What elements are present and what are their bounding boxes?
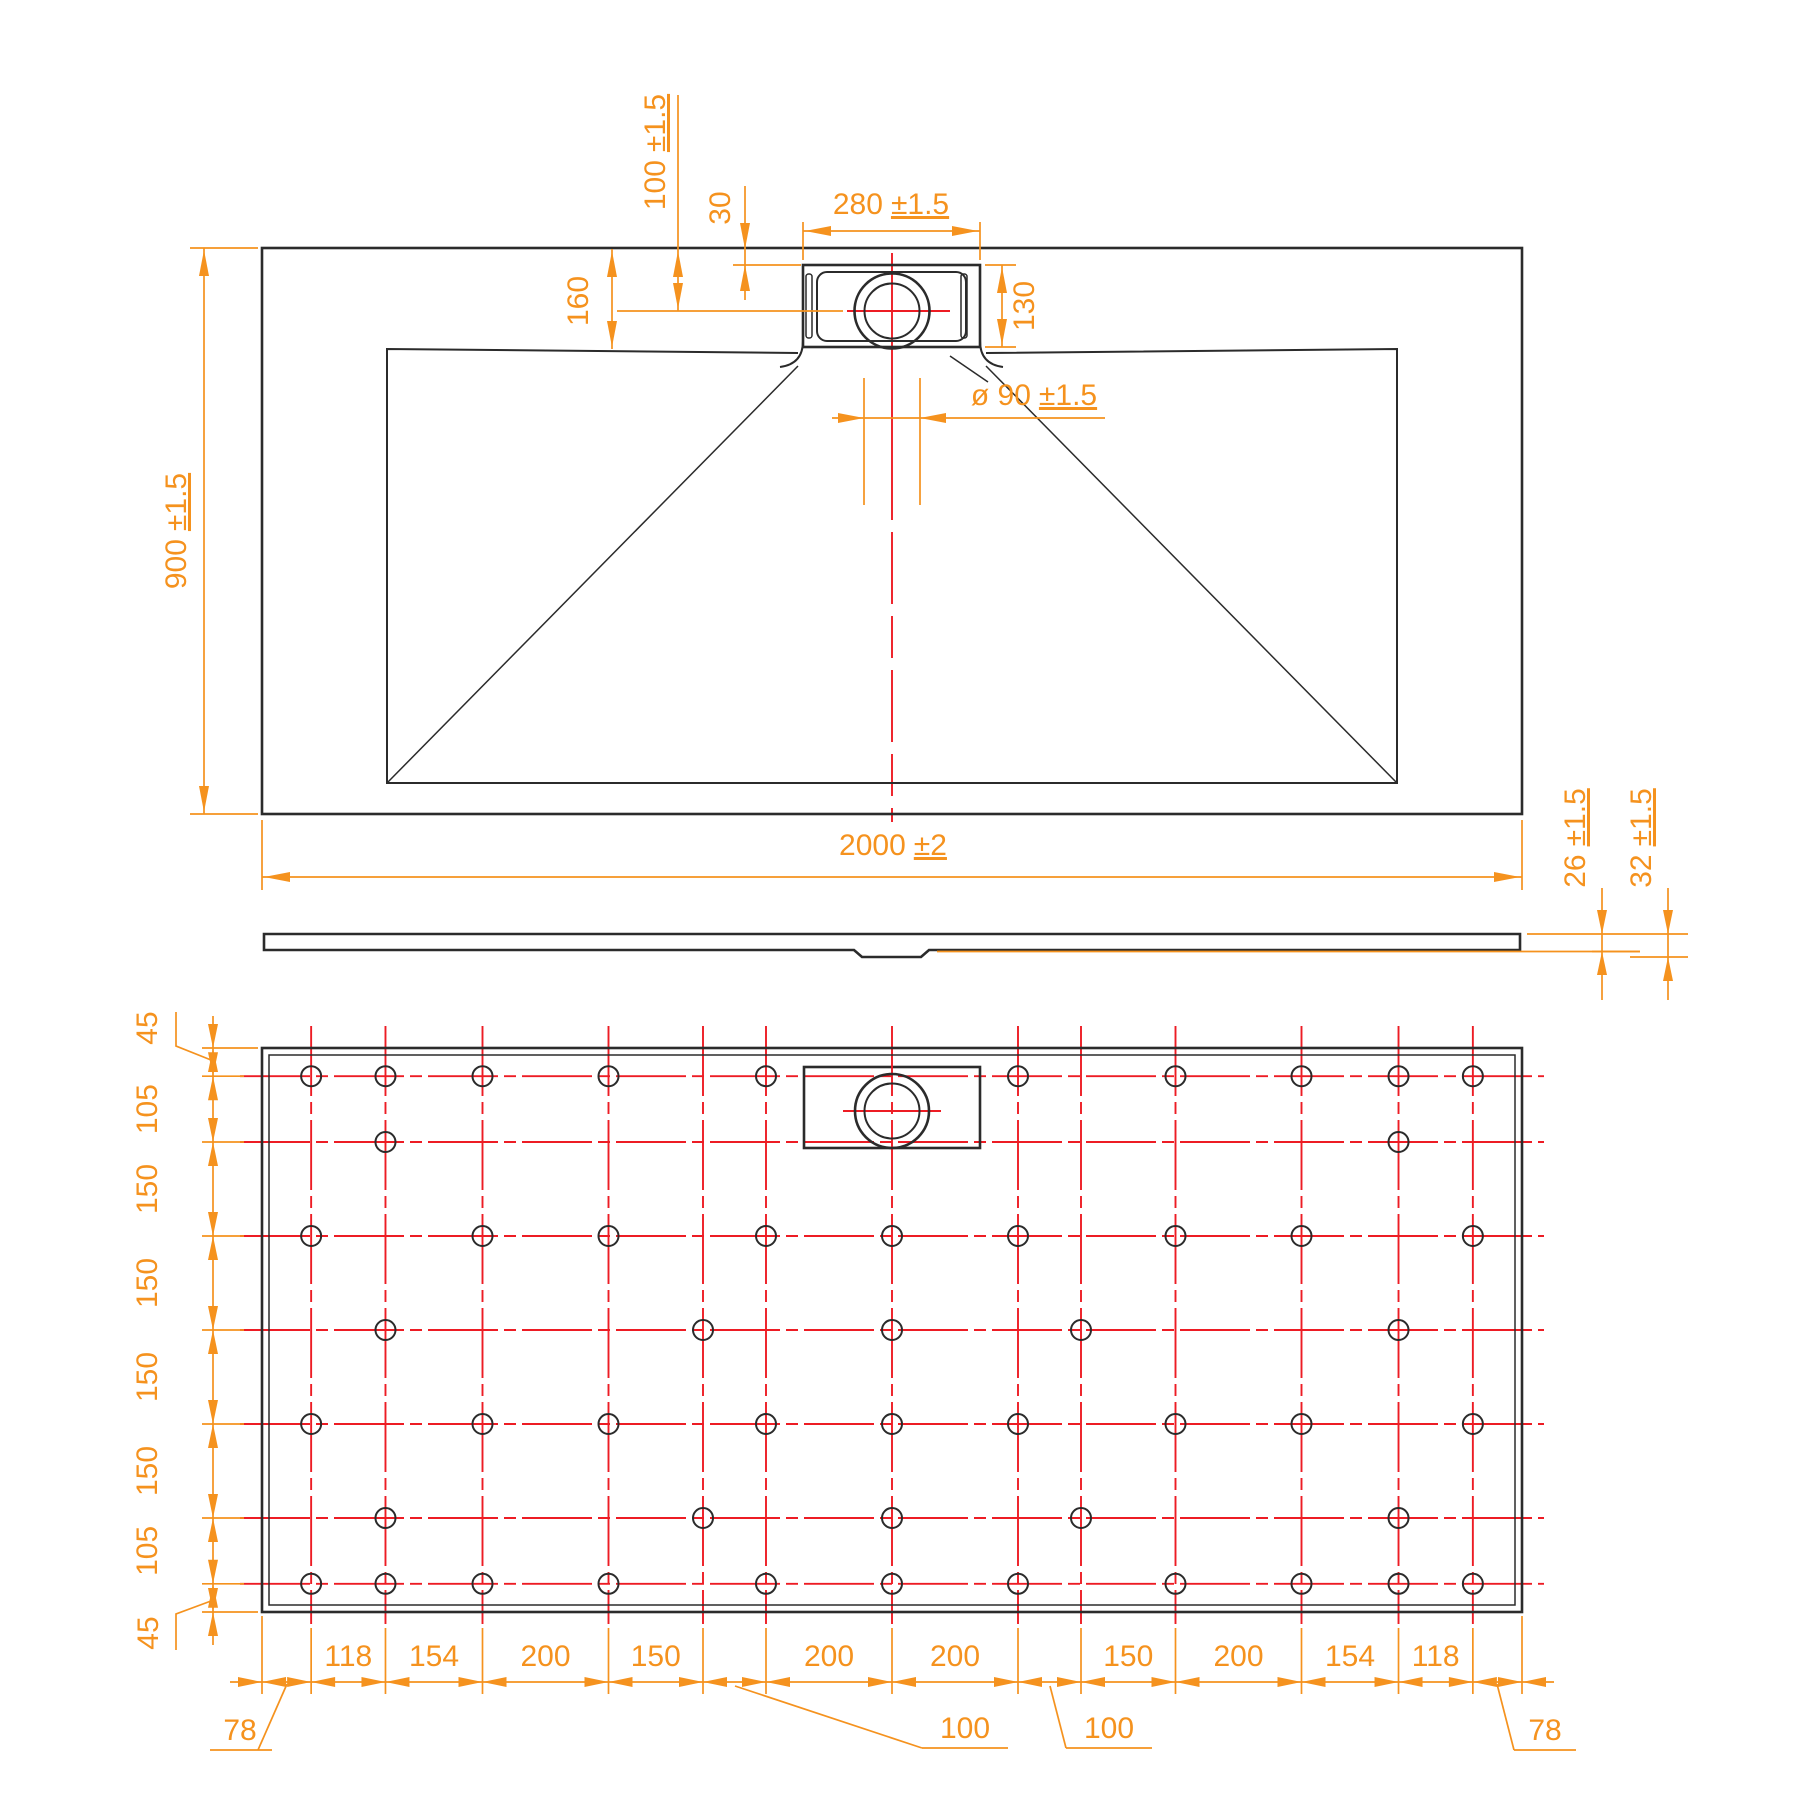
recess-waist-left	[780, 341, 803, 367]
chain-arrow	[208, 1236, 218, 1260]
underside-row-chain: 105150150150150105 45 45	[131, 1011, 258, 1650]
chain-label: 154	[1325, 1640, 1375, 1673]
column-chain-generated: 118154200150200200150200154118	[230, 1616, 1554, 1694]
chain-arrow	[1081, 1677, 1105, 1687]
dim-label-basin-top-offset: 160	[562, 276, 595, 326]
chain-arrow	[208, 1494, 218, 1518]
side-view: 26±1.5 32±1.5	[264, 788, 1688, 1000]
column-chain-leader-label-78-left: 78	[223, 1714, 256, 1747]
chain-label: 150	[631, 1640, 681, 1673]
bottom-view	[240, 1026, 1544, 1624]
arrowhead	[740, 223, 750, 249]
leader-line	[1497, 1684, 1514, 1750]
chain-label: 150	[131, 1258, 164, 1308]
chain-label: 200	[930, 1640, 980, 1673]
dim-recess-top-offset: 30	[704, 186, 801, 300]
chain-label: 200	[804, 1640, 854, 1673]
chain-label: 150	[1103, 1640, 1153, 1673]
chain-arrow	[892, 1677, 916, 1687]
chain-arrow	[208, 1306, 218, 1330]
chain-arrow	[1152, 1677, 1176, 1687]
dim-label-tray-depth: 900±1.5	[160, 473, 193, 589]
chain-arrow	[208, 1588, 218, 1612]
arrowhead	[920, 413, 946, 423]
chain-arrow	[1449, 1677, 1473, 1687]
chain-arrow	[208, 1400, 218, 1424]
chain-arrow	[1018, 1677, 1042, 1687]
chain-arrow	[1498, 1677, 1522, 1687]
row-chain-leader-label-bottom: 45	[132, 1616, 165, 1649]
chain-arrow	[208, 1052, 218, 1076]
dim-recess-depth: 130	[985, 265, 1041, 347]
chain-arrow	[679, 1677, 703, 1687]
plan-dimensions: 900±1.5 2000±2 160 100±1.5	[160, 94, 1522, 890]
dim-drain-diameter: ø 90±1.5	[832, 356, 1105, 505]
dim-basin-top-offset: 160	[562, 249, 617, 349]
arrowhead	[952, 226, 978, 236]
column-chain-leader-label-100-right: 100	[1084, 1712, 1134, 1745]
chain-arrow	[703, 1677, 727, 1687]
leader-line	[176, 1012, 211, 1060]
chain-arrow	[208, 1142, 218, 1166]
chain-label: 200	[1213, 1640, 1263, 1673]
chain-arrow	[208, 1076, 218, 1100]
arrowhead	[607, 251, 617, 277]
leader-line	[735, 1686, 922, 1748]
dim-total-thickness: 32±1.5	[1625, 788, 1688, 1000]
row-chain-leader-label-top: 45	[131, 1011, 164, 1044]
arrowhead	[1597, 910, 1607, 934]
dim-edge-thickness: 26±1.5	[1527, 788, 1688, 1000]
chain-arrow	[208, 1330, 218, 1354]
dim-label-drain-center-offset: 100±1.5	[639, 94, 672, 210]
dim-label-drain-diameter: ø 90±1.5	[971, 379, 1097, 412]
chain-label: 118	[1412, 1640, 1460, 1673]
arrowhead	[1597, 952, 1607, 976]
arrowhead	[1663, 910, 1673, 934]
chain-arrow	[311, 1677, 335, 1687]
chain-arrow	[287, 1677, 311, 1687]
arrowhead	[199, 250, 209, 276]
arrowhead	[199, 786, 209, 812]
chain-label: 200	[520, 1640, 570, 1673]
chain-arrow	[238, 1677, 262, 1687]
basin-slope-diagonal-left	[387, 366, 798, 783]
arrowhead	[607, 321, 617, 347]
chain-arrow	[208, 1024, 218, 1048]
dim-label-recess-top-offset: 30	[704, 191, 737, 224]
chain-arrow	[609, 1677, 633, 1687]
chain-label: 105	[131, 1526, 164, 1576]
chain-arrow	[766, 1677, 790, 1687]
chain-arrow	[361, 1677, 385, 1687]
column-chain-leader-label-100-left: 100	[940, 1712, 990, 1745]
dim-tray-width: 2000±2	[262, 820, 1522, 890]
arrowhead	[673, 283, 683, 309]
leader-line	[1050, 1686, 1066, 1748]
arrowhead	[997, 319, 1007, 345]
chain-arrow	[1375, 1677, 1399, 1687]
chain-arrow	[208, 1560, 218, 1584]
dim-label-recess-depth: 130	[1008, 281, 1041, 331]
chain-arrow	[1057, 1677, 1081, 1687]
dim-label-tray-width: 2000±2	[839, 829, 947, 862]
chain-label: 105	[131, 1084, 164, 1134]
leader-line	[176, 1601, 211, 1650]
arrowhead	[1494, 872, 1520, 882]
drawing-page: 900±1.5 2000±2 160 100±1.5	[0, 0, 1800, 1800]
chain-arrow	[208, 1518, 218, 1542]
dim-label-recess-width: 280±1.5	[833, 188, 949, 221]
chain-arrow	[1278, 1677, 1302, 1687]
chain-label: 118	[324, 1640, 372, 1673]
arrowhead	[838, 413, 864, 423]
chain-arrow	[1302, 1677, 1326, 1687]
arrowhead	[264, 872, 290, 882]
underside-drain	[804, 1026, 980, 1624]
chain-label: 154	[409, 1640, 459, 1673]
dim-label-edge-thickness: 26±1.5	[1559, 788, 1592, 888]
arrowhead	[997, 267, 1007, 293]
chain-label: 150	[131, 1352, 164, 1402]
arrowhead	[1663, 957, 1673, 981]
chain-arrow	[1522, 1677, 1546, 1687]
chain-arrow	[208, 1424, 218, 1448]
dim-tray-depth: 900±1.5	[160, 248, 258, 814]
chain-arrow	[208, 1118, 218, 1142]
chain-arrow	[262, 1677, 286, 1687]
dim-label-total-thickness: 32±1.5	[1625, 788, 1658, 888]
chain-arrow	[994, 1677, 1018, 1687]
arrowhead	[673, 251, 683, 277]
chain-arrow	[483, 1677, 507, 1687]
technical-drawing: 900±1.5 2000±2 160 100±1.5	[0, 0, 1800, 1800]
chain-arrow	[208, 1212, 218, 1236]
chain-arrow	[868, 1677, 892, 1687]
recess-waist-right	[980, 341, 1003, 367]
arrowhead	[805, 226, 831, 236]
chain-arrow	[1473, 1677, 1497, 1687]
chain-label: 150	[131, 1446, 164, 1496]
basin-slope-diagonal-right	[986, 366, 1397, 783]
chain-arrow	[459, 1677, 483, 1687]
chain-arrow	[385, 1677, 409, 1687]
column-chain-leader-label-78-right: 78	[1528, 1714, 1561, 1747]
chain-arrow	[585, 1677, 609, 1687]
profile-contour	[264, 934, 1520, 957]
drain-slot-left	[806, 274, 812, 338]
chain-label: 150	[131, 1164, 164, 1214]
underside-column-chain: 118154200150200200150200154118 78 100 10…	[210, 1616, 1576, 1750]
chain-arrow	[742, 1677, 766, 1687]
row-chain-generated: 105150150150150105	[131, 1016, 258, 1645]
top-view	[262, 248, 1522, 822]
chain-arrow	[1176, 1677, 1200, 1687]
chain-arrow	[208, 1612, 218, 1636]
chain-arrow	[1399, 1677, 1423, 1687]
arrowhead	[740, 265, 750, 291]
